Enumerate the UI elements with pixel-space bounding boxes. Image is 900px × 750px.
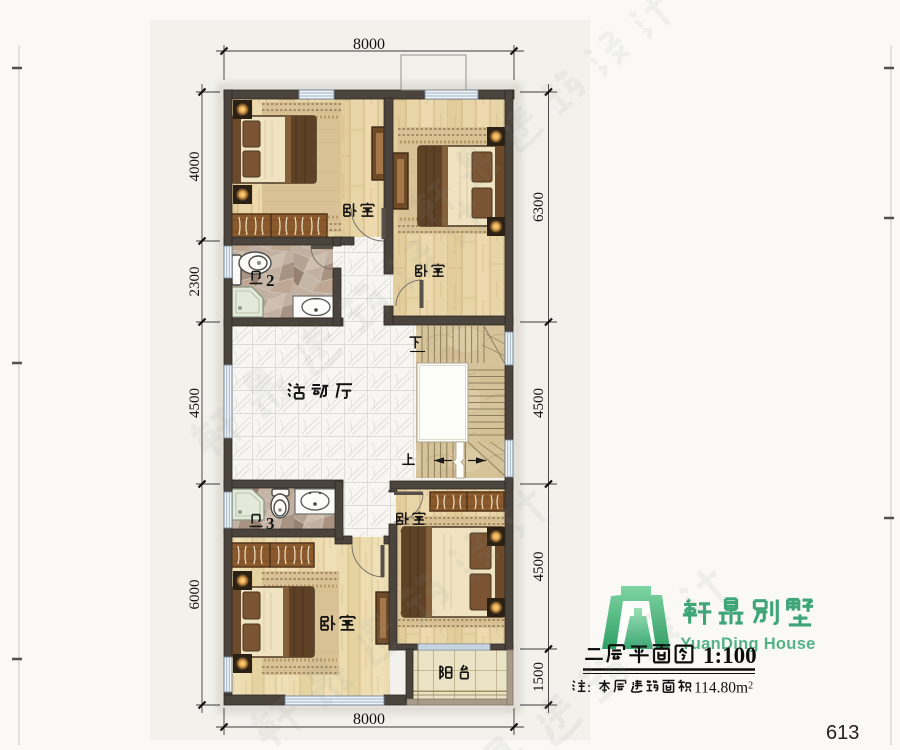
- svg-text:2: 2: [266, 271, 275, 290]
- svg-text:4500: 4500: [531, 388, 547, 418]
- svg-text:114.80m2: 114.80m2: [694, 680, 753, 697]
- svg-text:4500: 4500: [531, 552, 547, 582]
- svg-text:6000: 6000: [187, 580, 203, 610]
- svg-text:4000: 4000: [187, 152, 203, 182]
- svg-text:1:100: 1:100: [703, 643, 757, 668]
- svg-text:1500: 1500: [531, 662, 547, 692]
- svg-text:6300: 6300: [531, 192, 547, 222]
- svg-text:8000: 8000: [353, 36, 385, 53]
- svg-text:2300: 2300: [187, 267, 203, 297]
- svg-text:4500: 4500: [187, 388, 203, 418]
- svg-text:613: 613: [826, 722, 859, 744]
- svg-text:8000: 8000: [353, 711, 385, 728]
- svg-text:3: 3: [266, 514, 275, 533]
